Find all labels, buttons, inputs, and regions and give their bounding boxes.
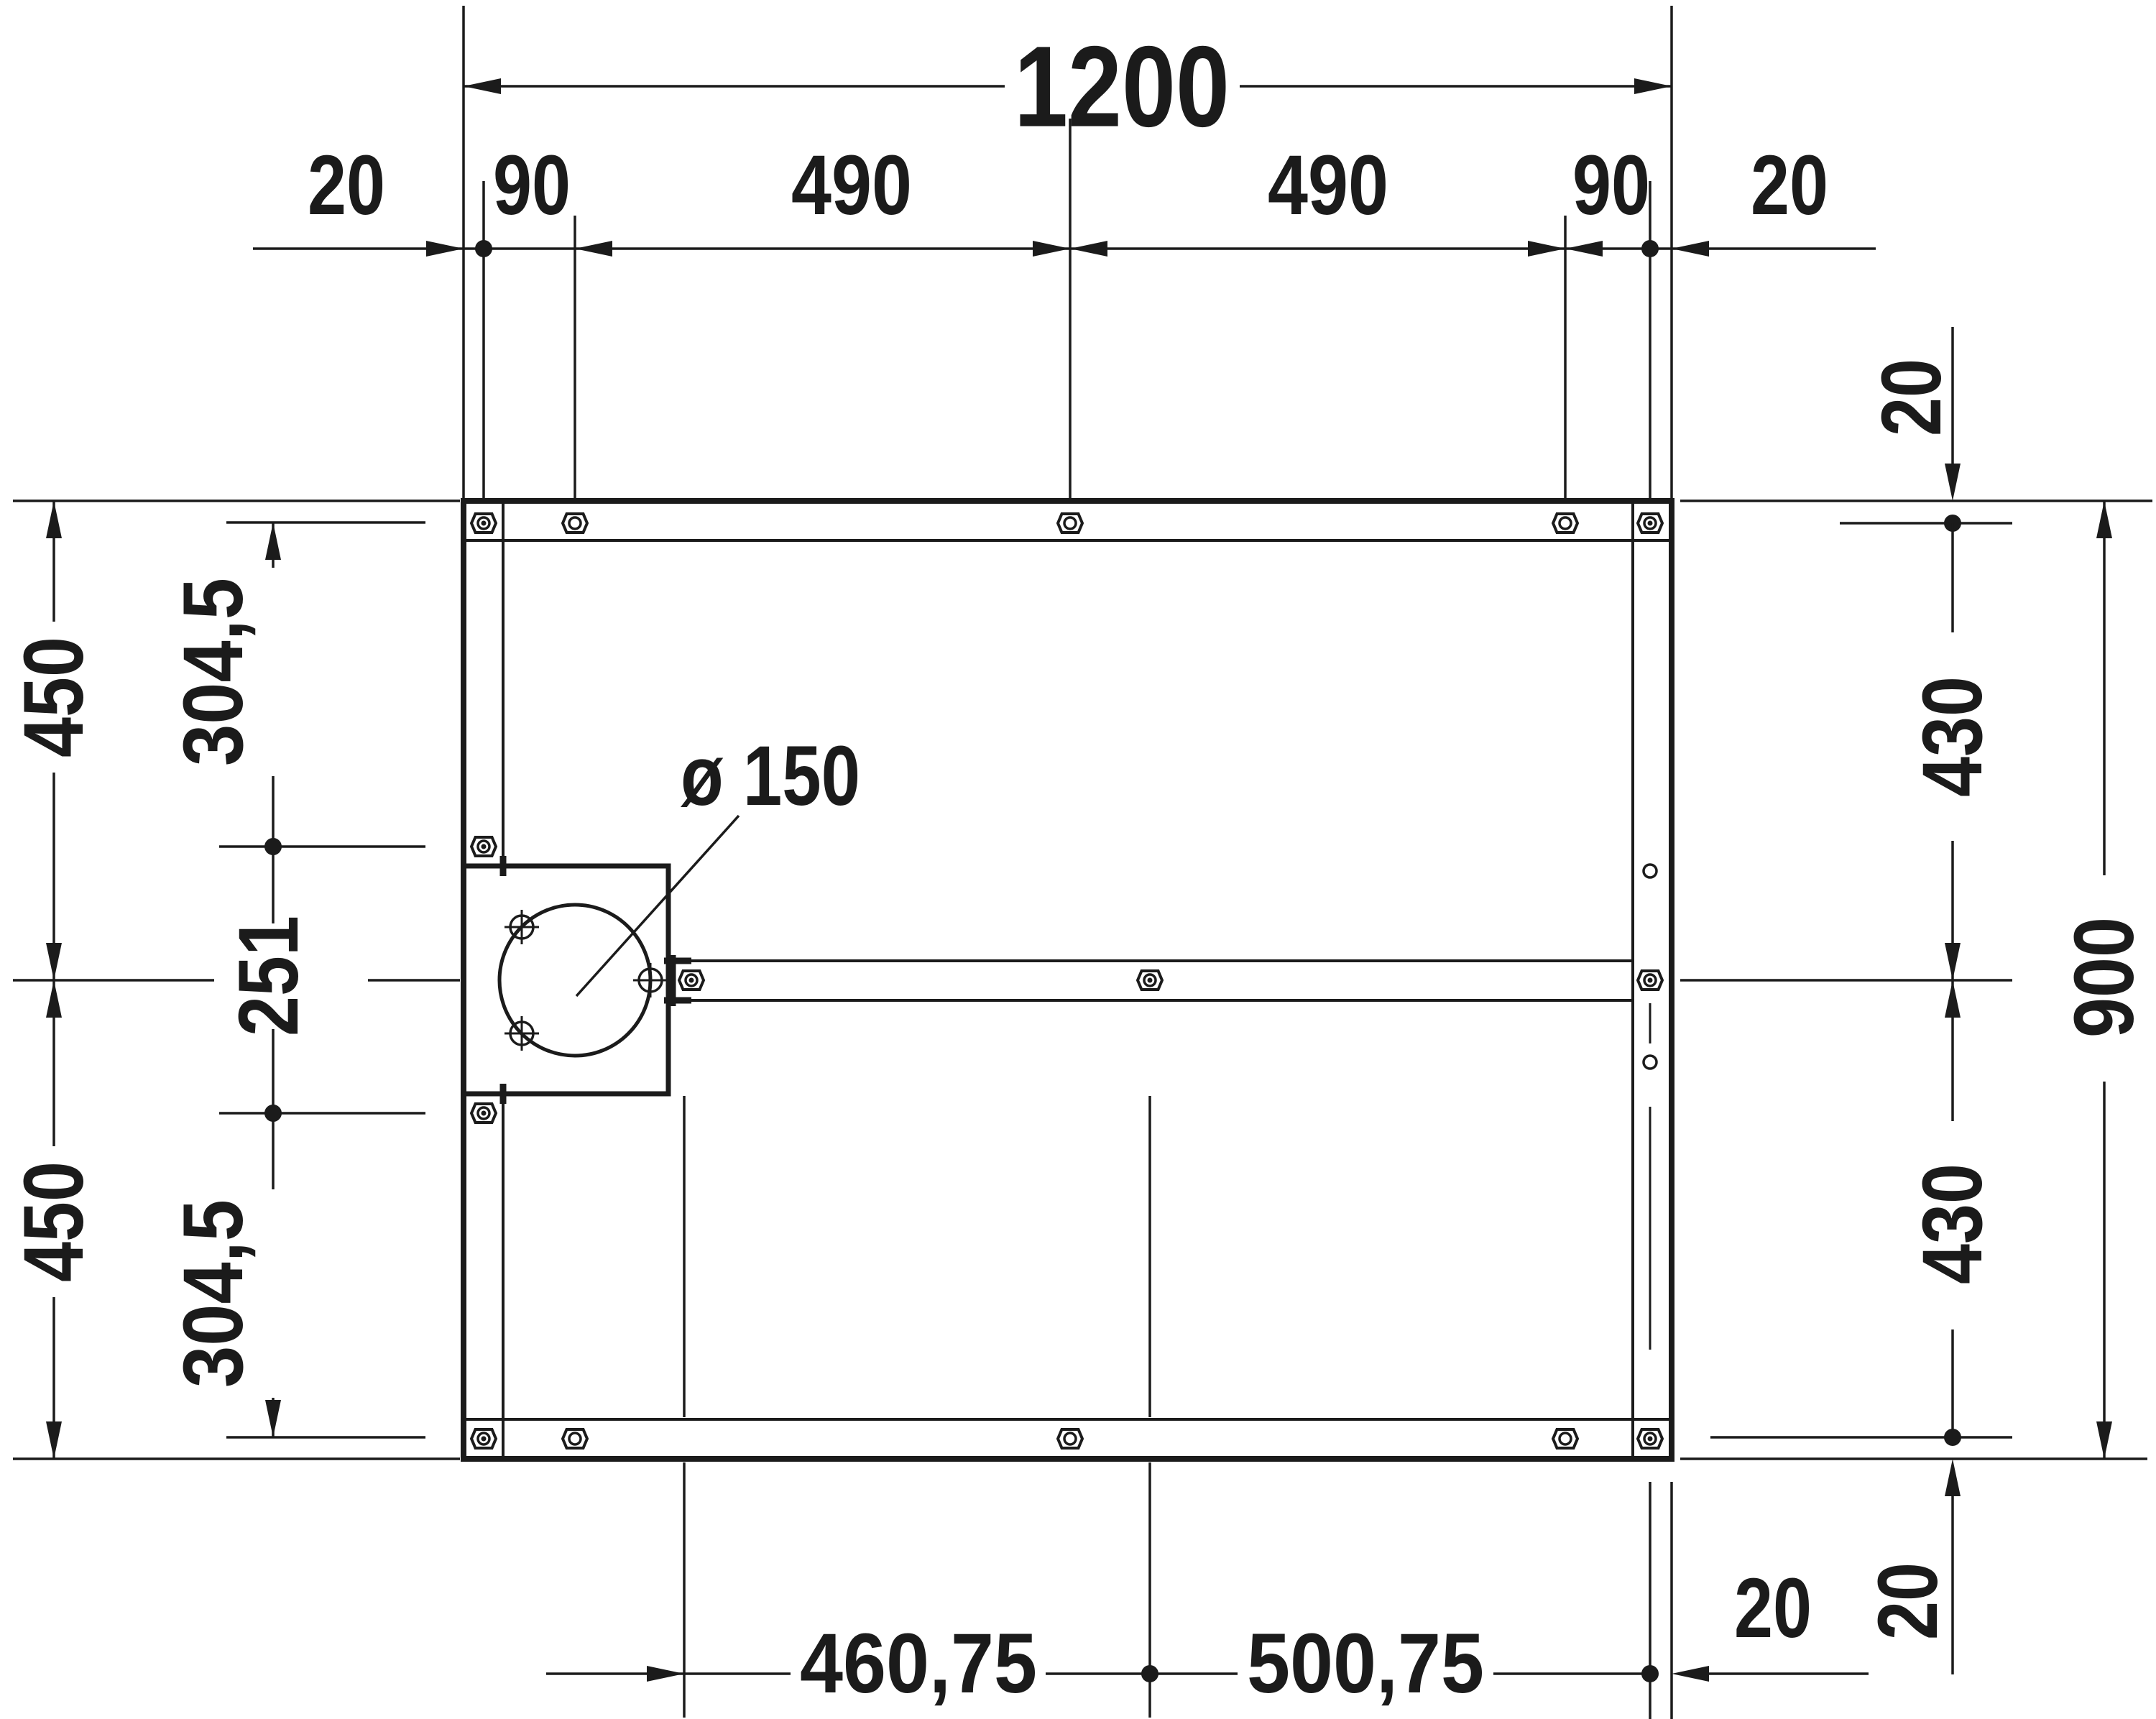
arrowhead-left <box>464 78 501 94</box>
dim-total-width: 1200 <box>464 22 1672 151</box>
arrowhead <box>1565 241 1603 257</box>
arrowhead <box>1945 943 1961 980</box>
dim-dot <box>475 240 492 257</box>
dim-dot <box>1641 1665 1659 1682</box>
drawing-canvas: 1200 20 90 490 490 90 20 450 450 <box>0 0 2156 1719</box>
arrowhead <box>575 241 612 257</box>
dim-label: 20 <box>308 138 385 233</box>
arrowhead <box>46 943 62 980</box>
dim-bottom-chain: 460,75 500,75 20 <box>546 1561 1869 1711</box>
right-rail-details <box>1644 865 1657 1350</box>
dim-right-chain: 20 430 430 20 <box>1861 327 2000 1674</box>
right-rail-hole <box>1644 865 1657 877</box>
hex-bolt <box>1638 1429 1662 1448</box>
dim-dot <box>264 838 282 855</box>
hex-bolt <box>563 514 587 533</box>
arrowhead <box>46 980 62 1018</box>
dim-label: 490 <box>1268 138 1388 233</box>
drain-leader-line <box>576 816 739 996</box>
dim-label: 430 <box>1905 676 2000 797</box>
dim-total-height: 900 <box>2057 501 2152 1459</box>
arrowhead <box>1672 241 1709 257</box>
arrowhead <box>1672 1666 1709 1682</box>
hex-bolt <box>1138 971 1162 990</box>
hex-bolt <box>471 1104 496 1123</box>
arrowhead <box>265 522 281 560</box>
hex-bolt <box>471 837 496 856</box>
arrowhead <box>647 1666 684 1682</box>
arrowhead <box>1945 980 1961 1018</box>
hex-bolt <box>679 971 704 990</box>
arrowhead <box>1945 464 1961 501</box>
dim-dot <box>264 1105 282 1122</box>
dim-dot <box>1641 240 1659 257</box>
dim-label: 450 <box>6 1161 101 1282</box>
right-rail-hole <box>1644 1056 1657 1069</box>
dim-label: 90 <box>1572 138 1650 233</box>
arrowhead <box>265 1400 281 1437</box>
dim-label: 20 <box>1751 138 1828 233</box>
drain-lug-right <box>633 963 668 997</box>
arrowhead <box>1033 241 1070 257</box>
dim-label: 304,5 <box>166 1199 261 1388</box>
hex-bolt <box>1058 1429 1082 1448</box>
dim-dot <box>1944 1429 1961 1446</box>
dim-label: 490 <box>791 138 912 233</box>
arrowhead <box>1528 241 1565 257</box>
dim-dot <box>1141 1665 1158 1682</box>
hex-bolt <box>1638 971 1662 990</box>
dim-label: 20 <box>1734 1561 1812 1656</box>
arrowhead <box>2096 501 2112 538</box>
dim-top-chain: 20 90 490 490 90 20 <box>253 138 1876 257</box>
dim-label: 20 <box>1861 1562 1955 1640</box>
drain-dimension: ø 150 <box>576 729 860 996</box>
arrowhead-right <box>1634 78 1672 94</box>
hex-bolt <box>1058 514 1082 533</box>
dim-label: 304,5 <box>166 578 261 766</box>
dim-label-1200: 1200 <box>1014 22 1230 151</box>
hex-bolt <box>1553 1429 1577 1448</box>
arrowhead <box>426 241 464 257</box>
hex-bolt <box>471 514 496 533</box>
support-frame-drawing: 1200 20 90 490 490 90 20 450 450 <box>0 0 2156 1719</box>
dim-label: 251 <box>221 916 316 1036</box>
arrowhead <box>46 501 62 538</box>
arrowhead <box>46 1421 62 1459</box>
arrowhead <box>1070 241 1107 257</box>
hex-bolt <box>471 1429 496 1448</box>
hex-bolt <box>1553 514 1577 533</box>
dim-label: 430 <box>1905 1163 2000 1284</box>
hex-bolt <box>563 1429 587 1448</box>
dim-label: 460,75 <box>800 1616 1037 1711</box>
drain-diameter-label: ø 150 <box>681 729 860 824</box>
dim-label-900: 900 <box>2057 917 2152 1038</box>
drain-opening <box>499 905 668 1056</box>
hex-bolt <box>1638 514 1662 533</box>
dim-label: 500,75 <box>1247 1616 1484 1711</box>
dim-label: 90 <box>493 138 571 233</box>
arrowhead <box>2096 1421 2112 1459</box>
dim-label: 20 <box>1864 359 1959 436</box>
dim-label: 450 <box>6 637 101 757</box>
arrowhead <box>1945 1459 1961 1496</box>
